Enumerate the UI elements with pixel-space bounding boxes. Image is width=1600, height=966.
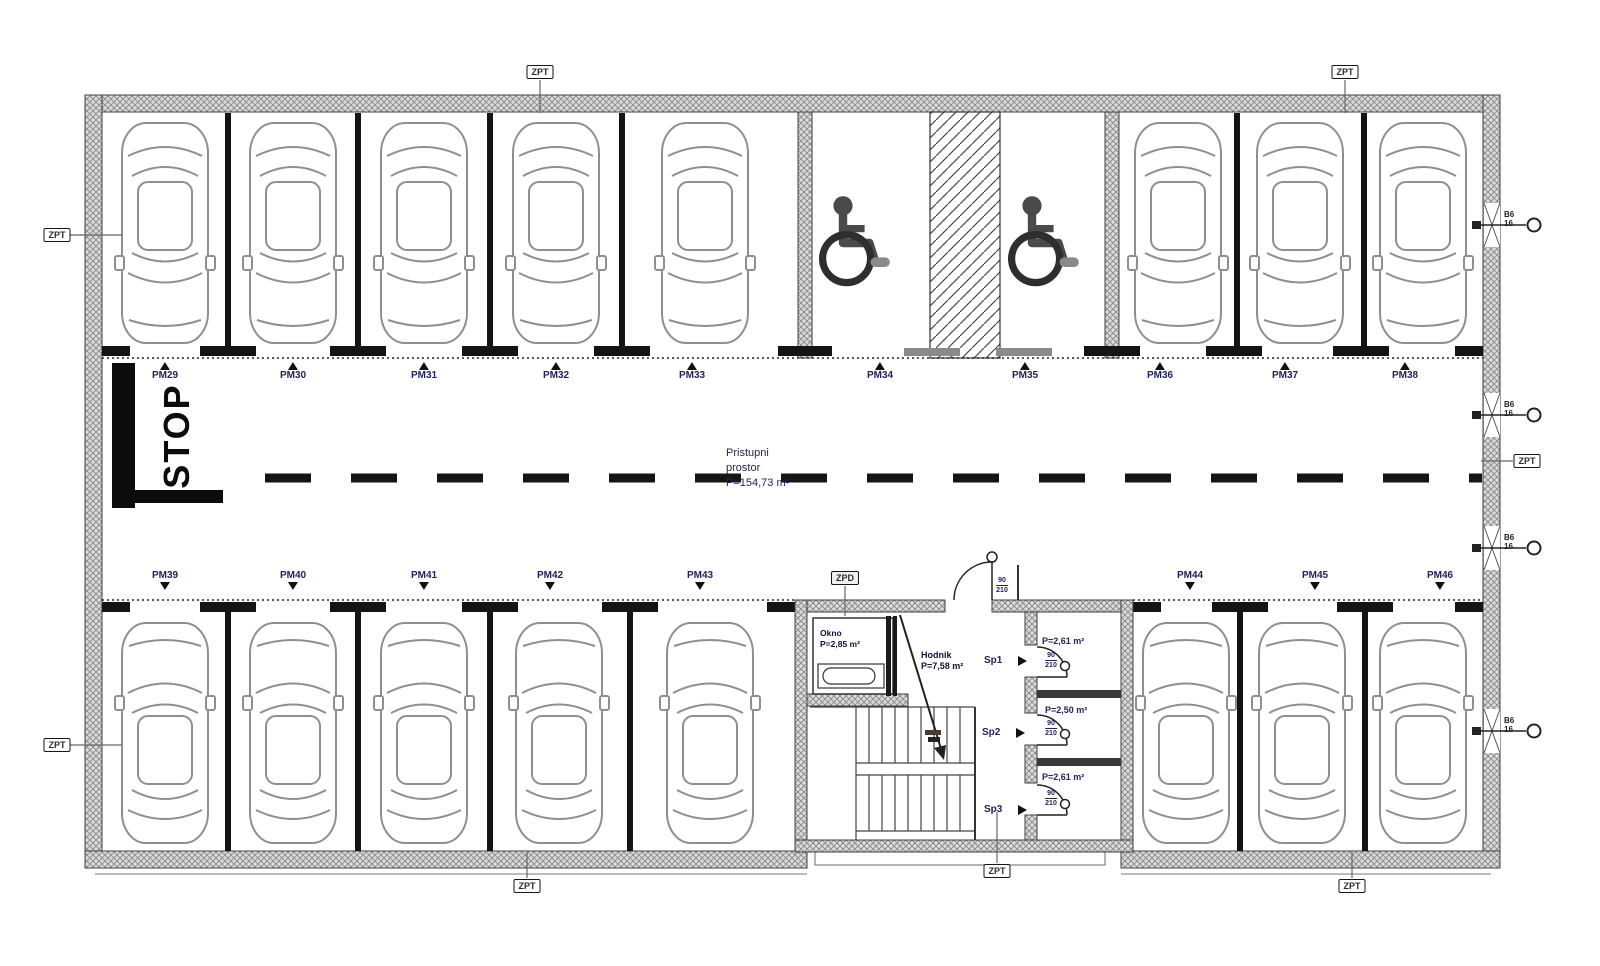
- zpt-tag: ZPT: [984, 864, 1011, 878]
- stall-arrow-icon: [695, 582, 705, 590]
- parking-spot-label: PM39: [152, 571, 178, 590]
- stall-arrow-icon: [160, 362, 170, 370]
- stall-arrow-icon: [551, 362, 561, 370]
- parking-spot-label: PM38: [1392, 362, 1418, 381]
- parking-spot-label: PM29: [152, 362, 178, 381]
- stall-arrow-icon: [1310, 582, 1320, 590]
- parking-spot-label: PM30: [280, 362, 306, 381]
- elevator-label: Okno P=2,85 m²: [820, 628, 860, 650]
- door-size-label: 90210: [1045, 790, 1057, 808]
- sp1-area: P=2,61 m²: [1042, 636, 1084, 646]
- door-size-label: 90210: [1045, 652, 1057, 670]
- stall-arrow-icon: [160, 582, 170, 590]
- corridor-label: Hodnik P=7,58 m²: [921, 650, 963, 672]
- parking-spot-label: PM40: [280, 571, 306, 590]
- vent-label: B616: [1504, 716, 1514, 734]
- parking-spot-label: PM32: [543, 362, 569, 381]
- parking-spot-label: PM31: [411, 362, 437, 381]
- stall-arrow-icon: [1280, 362, 1290, 370]
- parking-spot-label: PM36: [1147, 362, 1173, 381]
- stall-arrow-icon: [545, 582, 555, 590]
- storage-sp2-label: Sp2: [982, 727, 1025, 738]
- door-arrow-icon: [1016, 728, 1025, 738]
- parking-spot-label: PM43: [687, 571, 713, 590]
- zpt-tag: ZPT: [527, 65, 554, 79]
- zpt-tag: ZPT: [44, 228, 71, 242]
- stall-arrow-icon: [875, 362, 885, 370]
- stall-arrow-icon: [288, 362, 298, 370]
- vent-label: B616: [1504, 210, 1514, 228]
- zpt-tag: ZPT: [1332, 65, 1359, 79]
- stall-arrow-icon: [1400, 362, 1410, 370]
- stop-marking: STOP: [156, 383, 198, 488]
- stall-arrow-icon: [1020, 362, 1030, 370]
- door-size-label: 90210: [996, 577, 1008, 595]
- parking-spot-label: PM44: [1177, 571, 1203, 590]
- sp3-area: P=2,61 m²: [1042, 772, 1084, 782]
- stall-arrow-icon: [419, 582, 429, 590]
- zpt-tag: ZPT: [1514, 454, 1541, 468]
- vent-label: B616: [1504, 400, 1514, 418]
- zpd-tag: ZPD: [831, 571, 859, 585]
- parking-spot-label: PM33: [679, 362, 705, 381]
- door-size-label: 90210: [1045, 720, 1057, 738]
- vent-label: B616: [1504, 533, 1514, 551]
- parking-spot-label: PM46: [1427, 571, 1453, 590]
- parking-garage-floor-plan: PM29 PM30 PM31 PM32 PM33 PM34 PM35 PM36 …: [0, 0, 1600, 966]
- parking-spot-label: PM42: [537, 571, 563, 590]
- zpt-tag: ZPT: [1339, 879, 1366, 893]
- stall-arrow-icon: [1155, 362, 1165, 370]
- stall-arrow-icon: [288, 582, 298, 590]
- parking-spot-label: PM41: [411, 571, 437, 590]
- sp2-area: P=2,50 m²: [1045, 705, 1087, 715]
- parking-spot-label: PM37: [1272, 362, 1298, 381]
- stall-arrow-icon: [687, 362, 697, 370]
- door-arrow-icon: [1018, 805, 1027, 815]
- stall-arrow-icon: [1185, 582, 1195, 590]
- storage-sp1-label: Sp1: [984, 655, 1027, 666]
- aisle-label: Pristupni prostor P=154,73 m²: [726, 446, 789, 491]
- storage-sp3-label: Sp3: [984, 804, 1027, 815]
- parking-spot-label: PM45: [1302, 571, 1328, 590]
- zpt-tag: ZPT: [44, 738, 71, 752]
- parking-spot-label: PM34: [867, 362, 893, 381]
- stall-arrow-icon: [1435, 582, 1445, 590]
- door-arrow-icon: [1018, 656, 1027, 666]
- parking-spot-label: PM35: [1012, 362, 1038, 381]
- zpt-tag: ZPT: [514, 879, 541, 893]
- stall-arrow-icon: [419, 362, 429, 370]
